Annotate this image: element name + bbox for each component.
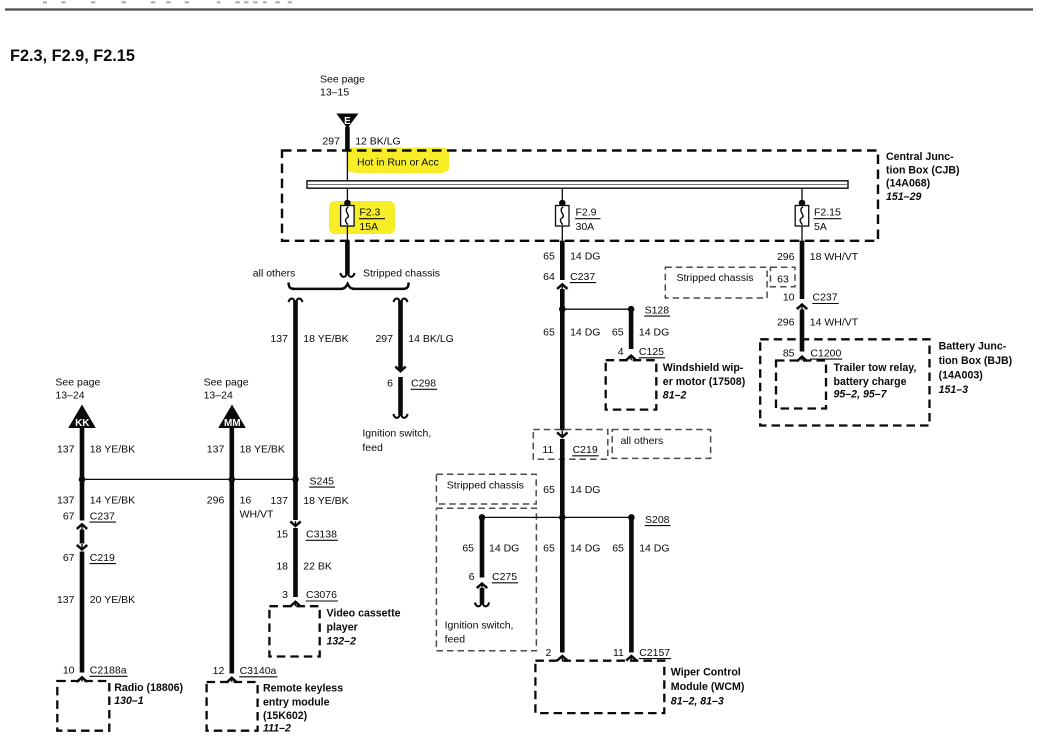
svg-text:2: 2 (545, 647, 551, 659)
svg-text:63: 63 (777, 273, 789, 285)
svg-text:Windshield wip-: Windshield wip- (663, 362, 744, 374)
svg-text:(15K602): (15K602) (263, 710, 307, 722)
svg-text:F2.3: F2.3 (359, 206, 380, 218)
svg-text:151–29: 151–29 (886, 191, 921, 203)
svg-text:14 DG: 14 DG (489, 543, 519, 555)
svg-text:C219: C219 (90, 552, 115, 564)
svg-text:65: 65 (612, 543, 624, 555)
svg-text:64: 64 (543, 271, 555, 283)
svg-text:(14A003): (14A003) (939, 370, 983, 382)
svg-text:95–2, 95–7: 95–2, 95–7 (834, 388, 888, 400)
svg-text:MM: MM (224, 418, 241, 429)
svg-text:67: 67 (63, 552, 75, 564)
svg-text:296: 296 (777, 317, 795, 329)
svg-text:Video cassette: Video cassette (327, 607, 401, 619)
svg-text:6: 6 (469, 571, 475, 583)
svg-text:Ignition switch,: Ignition switch, (362, 428, 431, 440)
svg-text:C298: C298 (411, 378, 436, 390)
svg-text:10: 10 (783, 292, 795, 304)
svg-text:81–2, 81–3: 81–2, 81–3 (671, 695, 724, 707)
svg-text:14 YE/BK: 14 YE/BK (90, 494, 135, 506)
svg-text:18 YE/BK: 18 YE/BK (90, 443, 135, 455)
svg-text:feed: feed (362, 442, 383, 454)
svg-text:18: 18 (276, 561, 288, 573)
svg-text:WH/VT: WH/VT (240, 509, 274, 521)
svg-text:137: 137 (57, 443, 75, 455)
svg-text:C2188a: C2188a (90, 665, 127, 677)
svg-text:er motor (17508): er motor (17508) (663, 376, 745, 388)
svg-text:Central Junc-: Central Junc- (886, 151, 954, 163)
svg-text:Stripped chassis: Stripped chassis (677, 272, 754, 284)
svg-text:111–2: 111–2 (263, 722, 291, 734)
svg-text:Remote keyless: Remote keyless (263, 682, 343, 694)
svg-text:65: 65 (543, 484, 555, 496)
svg-text:296: 296 (777, 251, 795, 263)
svg-text:130–1: 130–1 (114, 695, 144, 707)
svg-text:C1200: C1200 (810, 347, 841, 359)
svg-text:entry module: entry module (263, 697, 330, 709)
svg-text:S208: S208 (645, 514, 670, 526)
svg-text:65: 65 (543, 543, 555, 555)
svg-text:15: 15 (276, 529, 288, 541)
svg-text:14 DG: 14 DG (570, 250, 600, 262)
svg-text:See page: See page (320, 74, 365, 86)
svg-text:C275: C275 (492, 571, 517, 583)
svg-text:65: 65 (543, 250, 555, 262)
svg-text:F2.9: F2.9 (576, 206, 597, 218)
svg-text:C125: C125 (639, 346, 664, 358)
svg-text:4: 4 (618, 346, 624, 358)
svg-text:S128: S128 (645, 304, 670, 316)
svg-text:137: 137 (270, 333, 288, 345)
svg-text:22 BK: 22 BK (303, 561, 332, 573)
svg-text:3: 3 (282, 589, 288, 601)
svg-text:14 DG: 14 DG (570, 484, 600, 496)
svg-text:See page: See page (204, 377, 249, 389)
svg-text:18 YE/BK: 18 YE/BK (303, 333, 348, 345)
svg-text:13–15: 13–15 (320, 87, 349, 99)
svg-text:65: 65 (543, 326, 555, 338)
svg-text:296: 296 (207, 494, 225, 506)
svg-text:E: E (344, 116, 351, 127)
svg-text:65: 65 (462, 543, 474, 555)
svg-text:67: 67 (63, 510, 75, 522)
svg-text:137: 137 (57, 594, 75, 606)
svg-text:6: 6 (387, 378, 393, 390)
svg-text:13–24: 13–24 (55, 390, 84, 402)
svg-text:85: 85 (783, 347, 795, 359)
svg-text:Stripped chassis: Stripped chassis (447, 480, 524, 492)
svg-text:11: 11 (613, 647, 624, 659)
svg-text:C219: C219 (573, 444, 598, 456)
svg-text:132–2: 132–2 (327, 635, 357, 647)
svg-text:all others: all others (621, 435, 664, 447)
svg-text:11: 11 (542, 444, 553, 456)
svg-text:See page: See page (55, 377, 100, 389)
svg-text:14 DG: 14 DG (639, 326, 669, 338)
svg-text:13–24: 13–24 (204, 390, 233, 402)
svg-text:feed: feed (445, 633, 466, 645)
svg-text:12 BK/LG: 12 BK/LG (355, 135, 401, 147)
svg-text:Wiper Control: Wiper Control (671, 666, 741, 678)
svg-text:14 DG: 14 DG (570, 543, 600, 555)
svg-text:14 DG: 14 DG (570, 326, 600, 338)
svg-text:81–2: 81–2 (663, 389, 687, 401)
svg-text:C2157: C2157 (639, 647, 670, 659)
svg-text:65: 65 (612, 326, 624, 338)
svg-text:18 YE/BK: 18 YE/BK (240, 443, 285, 455)
svg-text:30A: 30A (576, 221, 595, 233)
svg-text:14 DG: 14 DG (639, 543, 669, 555)
svg-text:all others: all others (253, 267, 296, 279)
svg-text:5A: 5A (814, 221, 827, 233)
svg-text:S245: S245 (310, 475, 335, 487)
svg-text:10: 10 (63, 665, 75, 677)
svg-text:C3076: C3076 (306, 589, 337, 601)
svg-text:137: 137 (270, 495, 288, 507)
svg-text:C237: C237 (570, 271, 595, 283)
svg-text:14 BK/LG: 14 BK/LG (408, 333, 454, 345)
svg-text:137: 137 (207, 443, 225, 455)
svg-text:12: 12 (213, 665, 225, 677)
svg-text:player: player (327, 622, 358, 634)
svg-text:18 WH/VT: 18 WH/VT (810, 251, 859, 263)
svg-text:297: 297 (322, 135, 340, 147)
svg-text:Module (WCM): Module (WCM) (671, 681, 745, 693)
svg-text:Stripped chassis: Stripped chassis (363, 267, 440, 279)
svg-text:C3138: C3138 (306, 529, 337, 541)
svg-text:(14A068): (14A068) (886, 178, 930, 190)
svg-text:Battery Junc-: Battery Junc- (939, 341, 1007, 353)
svg-text:tion Box (BJB): tion Box (BJB) (939, 355, 1013, 367)
svg-text:Trailer tow relay,: Trailer tow relay, (834, 362, 917, 374)
svg-text:F2.15: F2.15 (814, 206, 841, 218)
svg-text:15A: 15A (359, 221, 378, 233)
svg-text:C237: C237 (813, 292, 838, 304)
svg-text:16: 16 (240, 494, 252, 506)
svg-text:battery charge: battery charge (834, 376, 907, 388)
svg-text:KK: KK (75, 418, 90, 429)
svg-text:297: 297 (375, 333, 393, 345)
svg-text:F2.3, F2.9, F2.15: F2.3, F2.9, F2.15 (10, 47, 135, 65)
svg-text:14 WH/VT: 14 WH/VT (810, 317, 859, 329)
svg-text:Hot in Run or Acc: Hot in Run or Acc (357, 156, 439, 168)
svg-text:tion Box (CJB): tion Box (CJB) (886, 164, 960, 176)
svg-text:Ignition switch,: Ignition switch, (445, 619, 514, 631)
svg-text:151–3: 151–3 (939, 384, 969, 396)
svg-text:137: 137 (57, 494, 75, 506)
svg-text:18 YE/BK: 18 YE/BK (303, 495, 348, 507)
svg-text:C3140a: C3140a (240, 665, 277, 677)
svg-text:Radio (18806): Radio (18806) (114, 682, 183, 694)
svg-text:20 YE/BK: 20 YE/BK (90, 594, 135, 606)
svg-text:C237: C237 (90, 510, 115, 522)
